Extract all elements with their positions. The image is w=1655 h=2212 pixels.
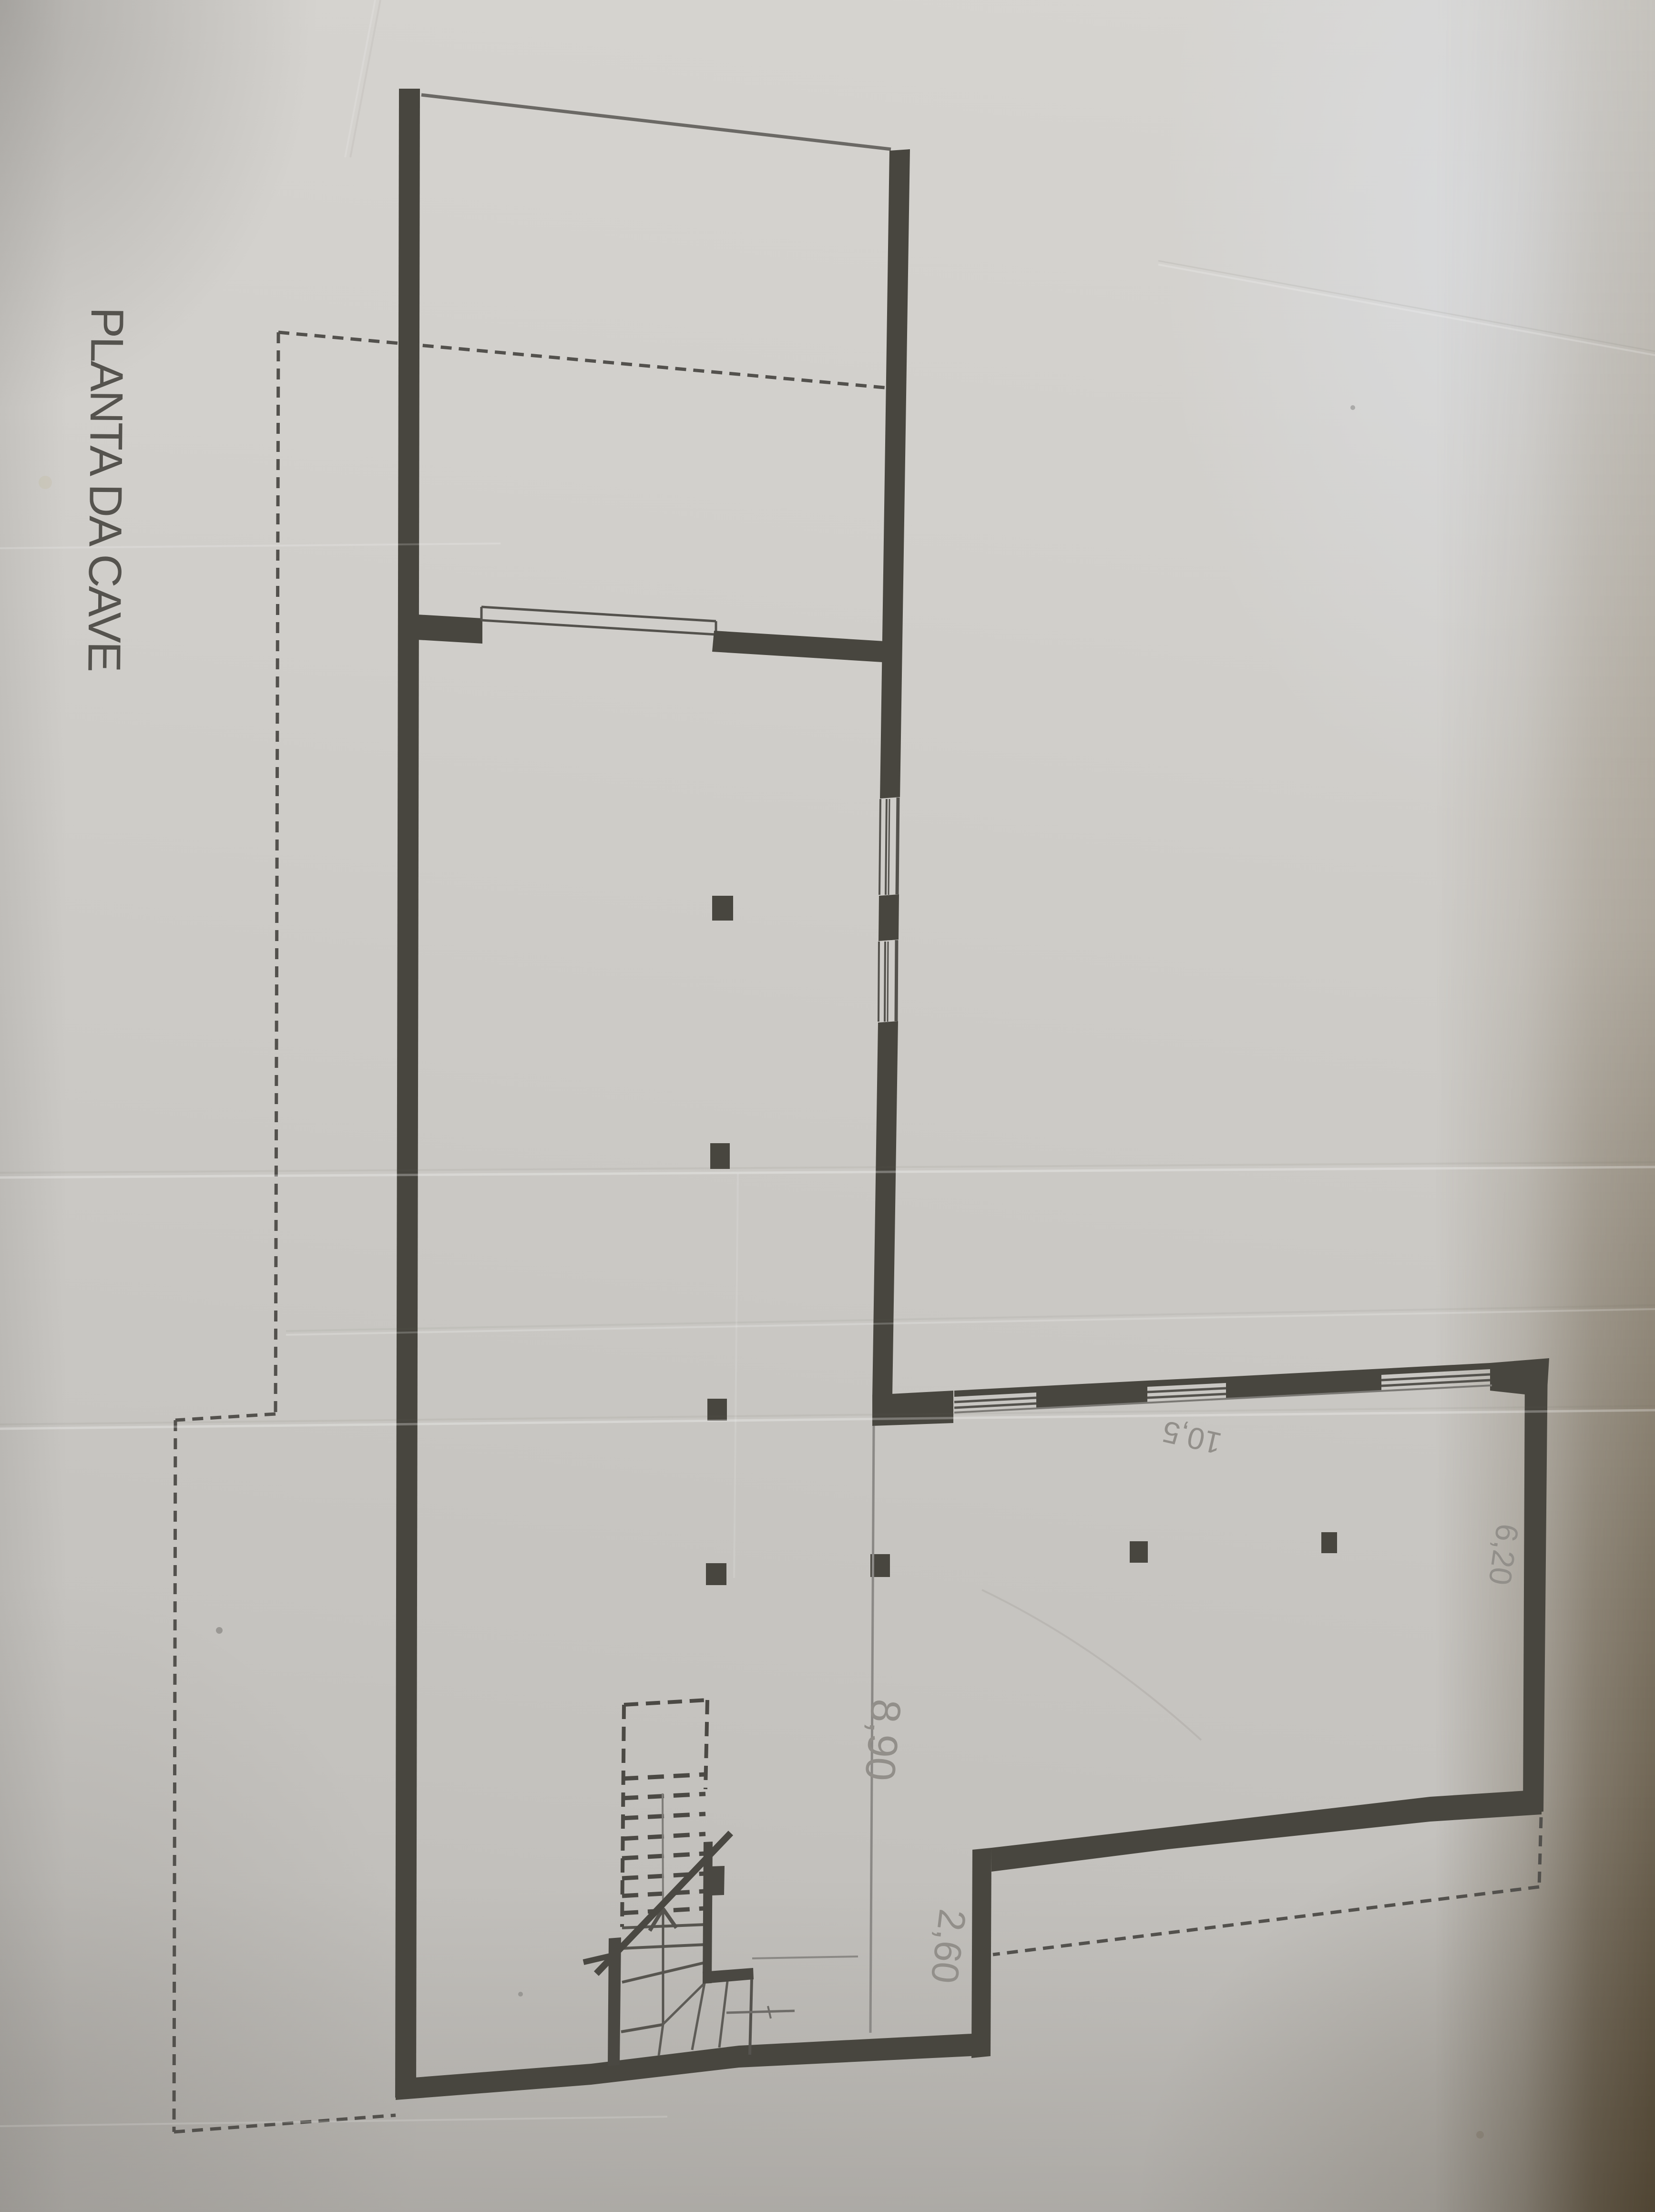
- svg-text:10,5: 10,5: [1159, 1414, 1225, 1461]
- svg-text:PLANTA DA CAVE: PLANTA DA CAVE: [78, 307, 133, 671]
- svg-text:8,90: 8,90: [856, 1697, 910, 1782]
- svg-text:6,20: 6,20: [1482, 1522, 1525, 1587]
- svg-text:2,60: 2,60: [923, 1907, 974, 1986]
